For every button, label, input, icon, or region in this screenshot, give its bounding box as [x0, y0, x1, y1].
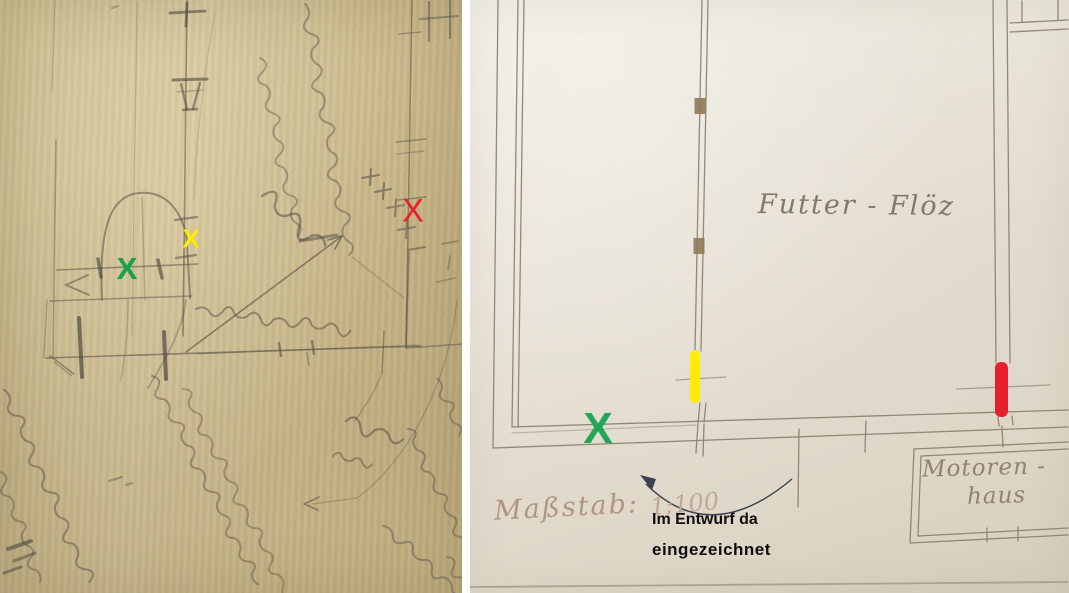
illegible-pencil-handwriting	[0, 3, 462, 593]
annotation-note-line1: Im Entwurf da	[652, 511, 758, 529]
red-highlight-bar	[995, 362, 1008, 417]
yellow-highlight-bar	[690, 350, 700, 403]
left-pencil-sketch-photo: X X X	[0, 0, 462, 593]
red-x-mark-left: X	[402, 194, 423, 226]
motor-house-label-line2: haus	[967, 482, 1027, 510]
motor-house-label-line1: Motoren -	[922, 453, 1047, 482]
room-label-futter-floez: Futter - Flöz	[758, 189, 955, 222]
annotation-note-line2: eingezeichnet	[652, 540, 771, 560]
yellow-x-mark-left: X	[182, 226, 199, 252]
right-inked-plan-photo: Futter - Flöz 1:100 Maßstab: Motoren - h…	[470, 0, 1069, 593]
photo-divider	[462, 0, 470, 593]
green-x-mark-right: X	[583, 407, 612, 451]
pencil-drawing-lines	[0, 0, 462, 593]
green-x-mark-left: X	[117, 253, 138, 284]
two-plan-comparison: X X X	[0, 0, 1069, 593]
